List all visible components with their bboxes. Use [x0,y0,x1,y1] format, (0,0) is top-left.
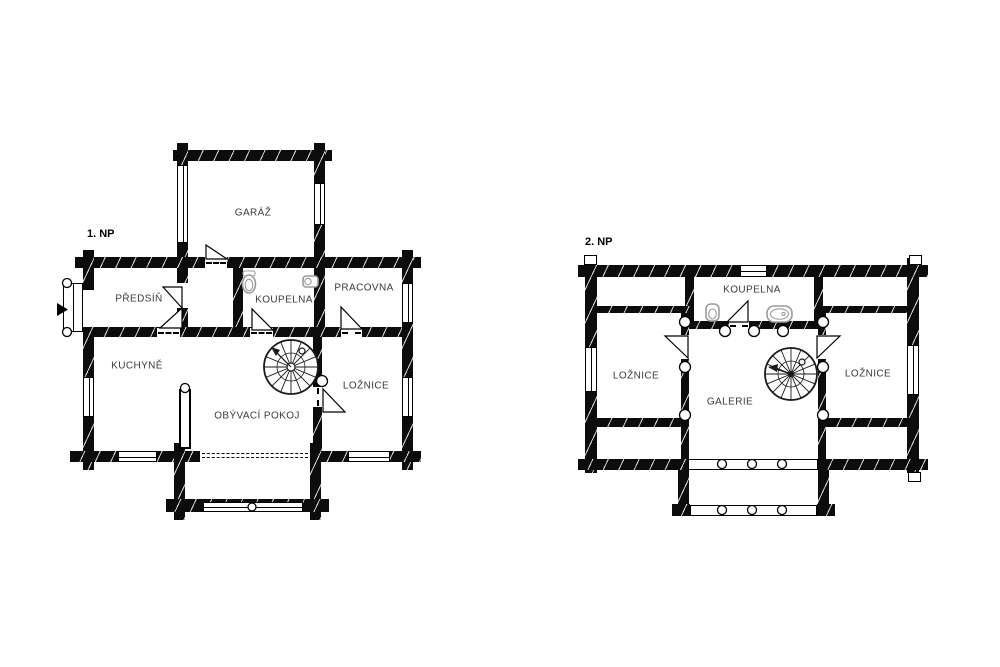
bathtub-icon [767,306,792,322]
log-post-icon [749,326,760,337]
log-post-icon [818,410,829,421]
log-post-icon [63,328,72,337]
log-post-icon [818,317,829,328]
log-post-icon [748,460,757,469]
spiral-staircase-icon [765,348,817,400]
log-post-icon [680,410,691,421]
log-post-icon [680,362,691,373]
log-post-icon [748,506,757,515]
log-post-icon [718,460,727,469]
log-post-icon [778,460,787,469]
door-swing-bathroom-1np [252,309,273,330]
vector-overlay [0,0,1000,667]
door-swing-bedroom-1np [323,389,345,412]
log-post-icon [248,503,256,511]
floorplan-drawing: 1. NP GARÁŽ PŘEDSÍŇ KOUPELNA PRACOVNA KU… [0,0,1000,667]
entrance-arrow-icon [57,303,68,316]
washbasin-icon [303,276,318,287]
log-post-icon [778,326,789,337]
door-swing-bedroom-left [665,336,688,358]
toilet-icon [243,271,256,293]
door-swing-hall-lower [160,308,182,328]
log-post-icon [680,317,691,328]
log-post-icon [818,362,829,373]
log-post-icon [720,326,731,337]
spiral-staircase-icon [264,340,318,394]
door-swing-garage [206,245,227,259]
door-swing-bedroom-right [817,336,840,358]
log-post-icon [181,384,190,393]
log-post-icon [718,506,727,515]
log-post-icon [63,279,72,288]
log-post-icon [778,506,787,515]
door-swing-hall-upper [163,287,182,308]
door-swing-bathroom-2np [727,301,748,322]
log-post-icon [317,376,328,387]
door-swing-study [341,307,362,329]
toilet-icon [706,304,719,321]
